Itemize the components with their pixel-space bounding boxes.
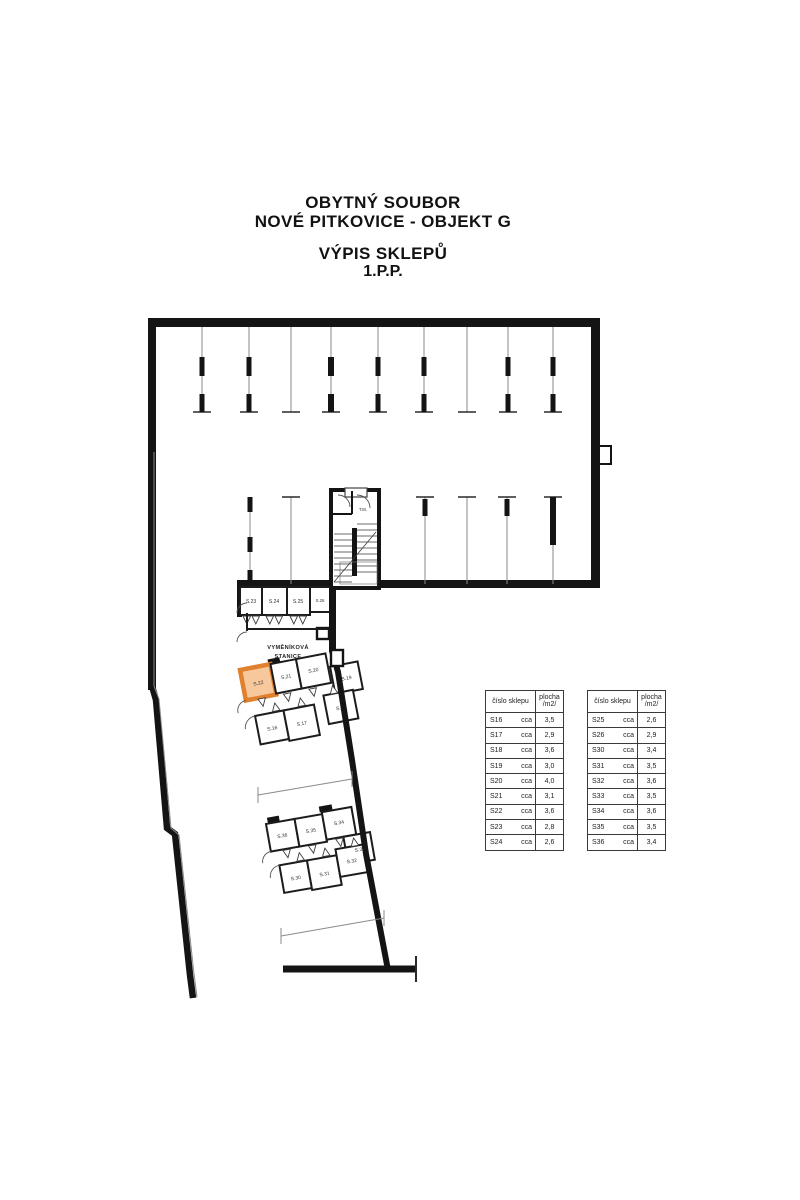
header-area: plocha /m2/ xyxy=(638,691,666,713)
table-header-row: číslo sklepu plocha /m2/ xyxy=(588,691,666,713)
pillar xyxy=(331,650,343,666)
cellar-table-1: číslo sklepu plocha /m2/ S16cca3,5 S17cc… xyxy=(485,690,564,851)
table-row: S24cca2,6 xyxy=(486,835,564,850)
table-row: S20cca4,0 xyxy=(486,774,564,789)
diagonal-wall-right xyxy=(331,588,388,970)
header-area: plocha /m2/ xyxy=(536,691,564,713)
table-header-row: číslo sklepu plocha /m2/ xyxy=(486,691,564,713)
table-row: S23cca2,8 xyxy=(486,820,564,835)
cellar-table-2: číslo sklepu plocha /m2/ S25cca2,6 S26cc… xyxy=(587,690,666,851)
cellar-label-s26: S.26 xyxy=(316,598,325,603)
table-row: S33cca3,5 xyxy=(588,789,666,804)
table-row: S21cca3,1 xyxy=(486,789,564,804)
cellar-label-s25: S.25 xyxy=(293,599,304,605)
site-boundary-left xyxy=(152,452,197,998)
table-row: S32cca3,6 xyxy=(588,774,666,789)
table-row: S19cca3,0 xyxy=(486,758,564,773)
header-cellar-number: číslo sklepu xyxy=(486,691,536,713)
table-row: S31cca3,5 xyxy=(588,758,666,773)
stairs-label: T.M. xyxy=(359,507,367,512)
cellar-label-s23: S.23 xyxy=(246,599,257,605)
parking-dividers-top xyxy=(193,327,562,412)
station-label-line1: VYMĚNÍKOVÁ xyxy=(267,643,309,651)
wall-niche xyxy=(599,446,611,464)
floor-plan: T.M. S.23 S.24 S.25 S.26 xyxy=(0,0,800,1200)
table-row: S36cca3,4 xyxy=(588,835,666,850)
table-row: S25cca2,6 xyxy=(588,713,666,728)
cellar-label-s24: S.24 xyxy=(269,599,280,605)
page: { "title": { "line1": "OBYTNÝ SOUBOR", "… xyxy=(0,0,800,1200)
table-row: S26cca2,9 xyxy=(588,728,666,743)
table-row: S17cca2,9 xyxy=(486,728,564,743)
table-row: S35cca3,5 xyxy=(588,820,666,835)
table-row: S30cca3,4 xyxy=(588,743,666,758)
staircase: T.M. xyxy=(331,488,379,588)
parking-dividers-bottom xyxy=(248,497,563,584)
header-cellar-number: číslo sklepu xyxy=(588,691,638,713)
table-row: S22cca3,6 xyxy=(486,804,564,819)
table-row: S34cca3,6 xyxy=(588,804,666,819)
cellar-row-s23-s26: S.23 S.24 S.25 S.26 xyxy=(237,585,330,624)
table-row: S16cca3,5 xyxy=(486,713,564,728)
bottom-wall xyxy=(283,956,416,982)
table-row: S18cca3,6 xyxy=(486,743,564,758)
